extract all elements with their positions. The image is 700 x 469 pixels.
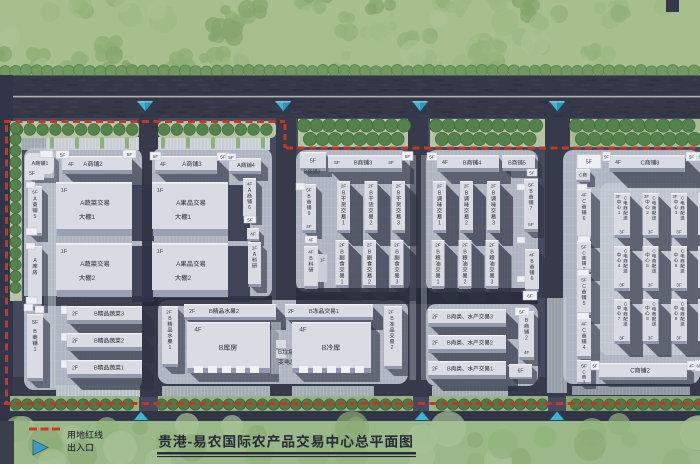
svg-text:A: A (83, 162, 87, 168)
svg-text:A: A (33, 197, 37, 203)
svg-text:5F: 5F (127, 152, 133, 158)
svg-text:4F: 4F (689, 363, 694, 368)
svg-text:4F: 4F (581, 193, 587, 199)
svg-text:3F: 3F (619, 283, 624, 288)
svg-text:3F: 3F (676, 336, 681, 341)
svg-text:4F: 4F (306, 224, 312, 229)
svg-text:B: B (465, 191, 469, 197)
svg-text:9: 9 (675, 316, 678, 321)
svg-text:5: 5 (34, 214, 37, 220)
svg-text:6: 6 (248, 205, 251, 211)
svg-text:2F: 2F (368, 184, 374, 189)
svg-text:B: B (490, 250, 494, 256)
svg-text:2F: 2F (341, 184, 347, 189)
svg-text:1: 1 (342, 221, 345, 227)
svg-text:B: B (309, 256, 313, 262)
svg-text:2F: 2F (462, 243, 468, 248)
svg-text:B: B (354, 161, 358, 167)
svg-text:1: 1 (34, 347, 37, 353)
svg-text:1: 1 (46, 161, 49, 167)
svg-text:5F: 5F (29, 171, 35, 177)
svg-text:2: 2 (121, 339, 124, 345)
svg-text:5F: 5F (60, 152, 66, 158)
svg-text:B: B (322, 345, 327, 352)
svg-text:B: B (508, 161, 512, 167)
svg-text:4F: 4F (615, 160, 621, 166)
svg-text:-: - (188, 434, 193, 450)
svg-text:A: A (80, 200, 85, 207)
svg-text:1: 1 (438, 221, 441, 227)
svg-text:5: 5 (646, 263, 649, 268)
svg-text:1: 1 (618, 210, 621, 215)
svg-text:B: B (463, 250, 467, 256)
svg-text:3: 3 (369, 161, 372, 167)
svg-text:4: 4 (252, 163, 255, 169)
svg-text:4F: 4F (388, 160, 394, 166)
svg-text:5F: 5F (334, 160, 340, 166)
svg-text:B: B (397, 191, 401, 197)
svg-text:C: C (582, 199, 586, 205)
svg-text:B: B (368, 250, 372, 256)
svg-text:B: B (340, 250, 344, 256)
svg-text:6F: 6F (697, 363, 700, 368)
svg-text:2: 2 (368, 280, 371, 286)
svg-text:3F: 3F (676, 283, 681, 288)
svg-text:2: 2 (490, 341, 493, 347)
svg-text:A: A (80, 261, 85, 268)
svg-text:B: B (94, 366, 98, 372)
svg-text:C: C (582, 284, 586, 290)
svg-text:3F: 3F (673, 194, 678, 199)
svg-text:2: 2 (370, 221, 373, 227)
svg-text:3: 3 (491, 280, 494, 286)
svg-text:B: B (525, 318, 529, 324)
svg-text:3F: 3F (676, 230, 681, 235)
svg-text:2F: 2F (437, 184, 443, 189)
svg-text:B: B (447, 315, 451, 321)
svg-text:5F: 5F (528, 222, 534, 227)
svg-text:4F: 4F (300, 328, 307, 334)
svg-text:B: B (463, 161, 467, 167)
svg-text:5F: 5F (689, 154, 694, 159)
svg-text:5F: 5F (153, 154, 159, 160)
svg-text:3F: 3F (619, 230, 624, 235)
svg-text:B: B (209, 309, 213, 315)
svg-text:2F: 2F (388, 310, 394, 316)
svg-text:4F: 4F (309, 237, 314, 242)
svg-text:4F: 4F (250, 232, 256, 238)
svg-text:2F: 2F (367, 243, 373, 248)
svg-text:5F: 5F (310, 159, 316, 165)
svg-text:2F: 2F (288, 309, 294, 315)
svg-text:B: B (492, 191, 496, 197)
svg-text:2F: 2F (72, 312, 78, 318)
svg-text:5F: 5F (220, 154, 226, 160)
svg-text:8: 8 (318, 170, 321, 176)
svg-text:A: A (176, 200, 181, 207)
svg-text:A: A (176, 261, 181, 268)
svg-text:1F: 1F (157, 188, 164, 194)
svg-text:5F: 5F (604, 154, 609, 159)
svg-text:6: 6 (531, 276, 534, 282)
svg-text:3F: 3F (648, 230, 653, 235)
svg-text:3F: 3F (619, 336, 624, 341)
svg-text:B: B (33, 329, 37, 335)
svg-text:5F: 5F (32, 320, 38, 326)
svg-text:A: A (32, 161, 36, 167)
svg-text:B: B (168, 316, 172, 322)
svg-text:3: 3 (583, 380, 586, 385)
svg-text:9: 9 (308, 211, 311, 217)
svg-text:8: 8 (656, 161, 659, 167)
svg-text:2F: 2F (432, 367, 438, 373)
svg-text:3F: 3F (648, 336, 653, 341)
svg-text:1: 1 (92, 214, 96, 221)
svg-text:4F: 4F (442, 160, 448, 166)
svg-text:4F: 4F (524, 350, 530, 356)
svg-text:4F: 4F (247, 182, 253, 188)
svg-text:3: 3 (492, 221, 495, 227)
svg-text:B: B (369, 191, 373, 197)
svg-text:2F: 2F (432, 315, 438, 321)
svg-text:1: 1 (490, 367, 493, 373)
svg-text:2F: 2F (396, 184, 402, 189)
svg-text:5F: 5F (581, 278, 587, 284)
svg-text:B: B (309, 309, 313, 315)
svg-text:2: 2 (236, 309, 239, 315)
svg-text:B: B (438, 191, 442, 197)
svg-text:2F: 2F (491, 184, 497, 189)
svg-text:4F: 4F (529, 253, 535, 259)
svg-text:5F: 5F (586, 159, 593, 165)
svg-text:A: A (33, 258, 37, 264)
svg-text:2: 2 (525, 335, 528, 341)
svg-text:3F: 3F (648, 283, 653, 288)
svg-text:1F: 1F (320, 258, 325, 263)
svg-text:1F: 1F (252, 246, 258, 252)
svg-text:1F: 1F (157, 249, 164, 255)
svg-text:1: 1 (121, 366, 124, 372)
svg-text:3F: 3F (616, 194, 621, 199)
svg-text:5F: 5F (306, 188, 312, 194)
svg-text:4: 4 (583, 345, 586, 351)
svg-text:5F: 5F (529, 170, 535, 176)
svg-text:2F: 2F (72, 366, 78, 372)
svg-text:B: B (219, 345, 224, 352)
svg-text:1F: 1F (61, 249, 68, 255)
svg-text:B: B (436, 250, 440, 256)
svg-text:3F: 3F (644, 194, 649, 199)
svg-text:2F: 2F (72, 339, 78, 345)
svg-text:3: 3 (675, 210, 678, 215)
svg-text:6: 6 (583, 216, 586, 222)
svg-text:B: B (94, 312, 98, 318)
svg-text:7: 7 (618, 316, 621, 321)
svg-text:5: 5 (583, 301, 586, 307)
svg-text:5F: 5F (593, 363, 598, 368)
svg-text:A: A (182, 162, 186, 168)
svg-text:4F: 4F (308, 250, 314, 256)
svg-text:2F: 2F (464, 184, 470, 189)
svg-text:2F: 2F (435, 243, 441, 248)
svg-text:B: B (342, 191, 346, 197)
svg-text:6F: 6F (518, 369, 524, 375)
svg-text:B: B (447, 367, 451, 373)
svg-text:5: 5 (523, 161, 526, 167)
svg-text:B: B (304, 170, 308, 176)
svg-text:2F: 2F (339, 243, 345, 248)
svg-text:2F: 2F (489, 243, 495, 248)
svg-text:6: 6 (675, 263, 678, 268)
svg-text:7: 7 (530, 206, 533, 212)
svg-text:C: C (582, 328, 586, 334)
svg-text:1: 1 (437, 280, 440, 286)
svg-text:2F: 2F (432, 341, 438, 347)
svg-text:5F: 5F (32, 190, 38, 196)
svg-text:5F: 5F (429, 154, 435, 160)
svg-text:B: B (395, 250, 399, 256)
svg-text:2: 2 (391, 345, 394, 351)
svg-text:5F: 5F (528, 183, 534, 189)
svg-text:4F: 4F (195, 328, 202, 334)
svg-text:4F: 4F (160, 162, 166, 168)
svg-text:3: 3 (121, 312, 124, 318)
svg-text:B: B (278, 350, 282, 356)
svg-text:4F: 4F (581, 322, 587, 328)
svg-text:A: A (237, 163, 241, 169)
svg-text:2F: 2F (394, 243, 400, 248)
svg-text:A: A (253, 252, 257, 258)
svg-text:5F: 5F (228, 155, 234, 161)
svg-text:1: 1 (188, 214, 192, 221)
svg-text:4: 4 (618, 263, 621, 268)
svg-text:B: B (390, 316, 394, 322)
svg-text:B: B (447, 341, 451, 347)
svg-text:2: 2 (464, 280, 467, 286)
svg-text:3: 3 (397, 221, 400, 227)
svg-text:5F: 5F (519, 309, 525, 315)
svg-text:1F: 1F (61, 188, 68, 194)
svg-text:5F: 5F (247, 217, 253, 223)
svg-text:B: B (94, 339, 98, 345)
svg-text:1: 1 (336, 309, 339, 315)
svg-text:1: 1 (169, 345, 172, 351)
svg-text:2: 2 (92, 275, 96, 282)
svg-text:C: C (630, 369, 635, 375)
svg-text:2: 2 (646, 210, 649, 215)
svg-text:1: 1 (341, 280, 344, 286)
svg-text:5F: 5F (405, 154, 411, 160)
svg-text:8: 8 (646, 316, 649, 321)
svg-text:2F: 2F (189, 309, 195, 315)
svg-text:3: 3 (490, 315, 493, 321)
svg-text:4F: 4F (68, 162, 74, 168)
svg-text:2F: 2F (166, 310, 172, 316)
svg-text:C: C (641, 161, 645, 167)
svg-text:2: 2 (465, 221, 468, 227)
svg-text:2: 2 (188, 275, 192, 282)
svg-text:3: 3 (396, 280, 399, 286)
svg-text:6F: 6F (527, 293, 533, 299)
